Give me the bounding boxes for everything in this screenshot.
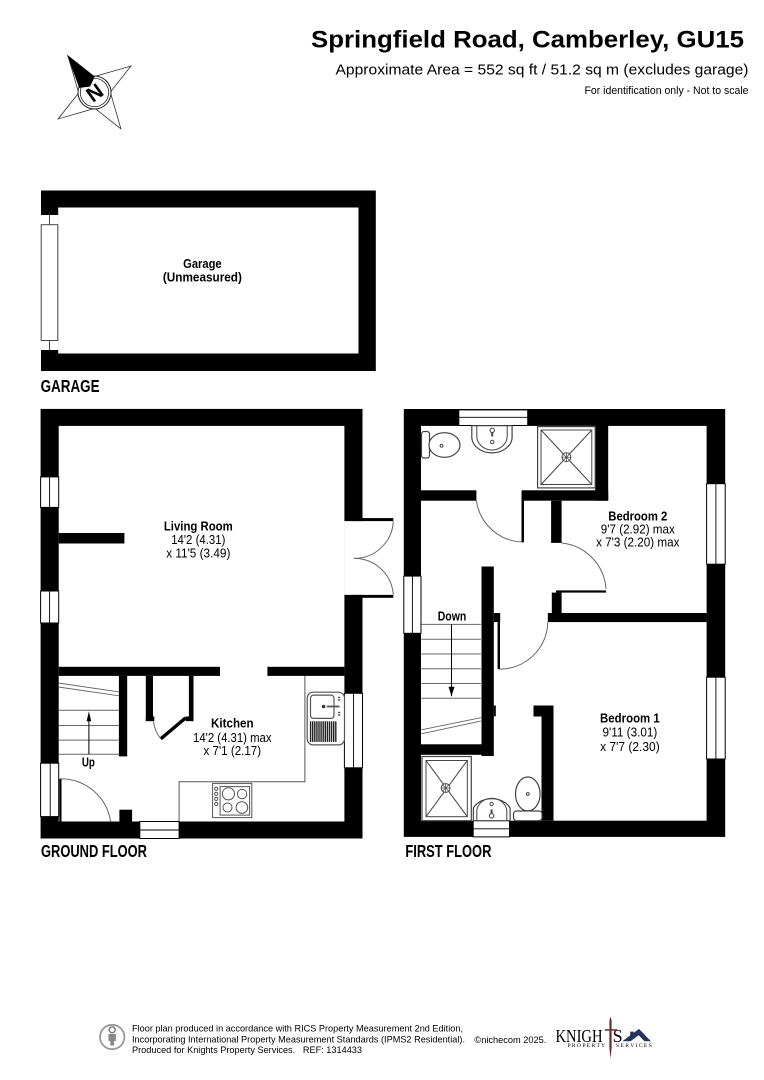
svg-text:S E R V I C E S: S E R V I C E S: [616, 1043, 652, 1049]
svg-text:GROUND FLOOR: GROUND FLOOR: [41, 841, 147, 861]
svg-text:9'11 (3.01): 9'11 (3.01): [603, 726, 658, 740]
svg-text:x 7'1 (2.17): x 7'1 (2.17): [204, 744, 262, 758]
svg-text:9'7 (2.92) max: 9'7 (2.92) max: [601, 523, 676, 537]
svg-text:Kitchen: Kitchen: [211, 717, 254, 731]
svg-text:Living Room: Living Room: [164, 520, 233, 534]
svg-text:Incorporating International Pr: Incorporating International Property Mea…: [132, 1034, 465, 1044]
svg-text:Down: Down: [438, 610, 467, 624]
svg-text:Up: Up: [82, 755, 95, 769]
svg-text:Springfield Road, Camberley, G: Springfield Road, Camberley, GU15: [311, 27, 744, 54]
svg-text:Bedroom 1: Bedroom 1: [600, 711, 660, 725]
svg-text:©nichecom 2025.: ©nichecom 2025.: [474, 1035, 546, 1045]
svg-text:14'2 (4.31) max: 14'2 (4.31) max: [193, 731, 272, 745]
svg-text:Bedroom 2: Bedroom 2: [608, 510, 667, 524]
svg-text:x 7'7 (2.30): x 7'7 (2.30): [600, 740, 660, 754]
svg-text:Garage: Garage: [183, 257, 222, 271]
svg-text:Produced for Knights Property: Produced for Knights Property Services. …: [132, 1045, 362, 1055]
svg-text:For identification only - Not: For identification only - Not to scale: [585, 85, 749, 97]
svg-text:Approximate Area = 552 sq ft /: Approximate Area = 552 sq ft / 51.2 sq m…: [336, 63, 749, 79]
svg-text:Floor plan produced in accorda: Floor plan produced in accordance with R…: [132, 1024, 463, 1034]
svg-text:14'2 (4.31): 14'2 (4.31): [171, 533, 225, 547]
svg-text:FIRST FLOOR: FIRST FLOOR: [405, 841, 491, 861]
svg-text:GARAGE: GARAGE: [41, 376, 100, 396]
svg-text:(Unmeasured): (Unmeasured): [163, 271, 242, 285]
svg-text:x 11'5 (3.49): x 11'5 (3.49): [166, 547, 230, 561]
svg-text:P R O P E R T Y: P R O P E R T Y: [568, 1043, 606, 1049]
svg-text:x 7'3 (2.20) max: x 7'3 (2.20) max: [596, 536, 680, 550]
